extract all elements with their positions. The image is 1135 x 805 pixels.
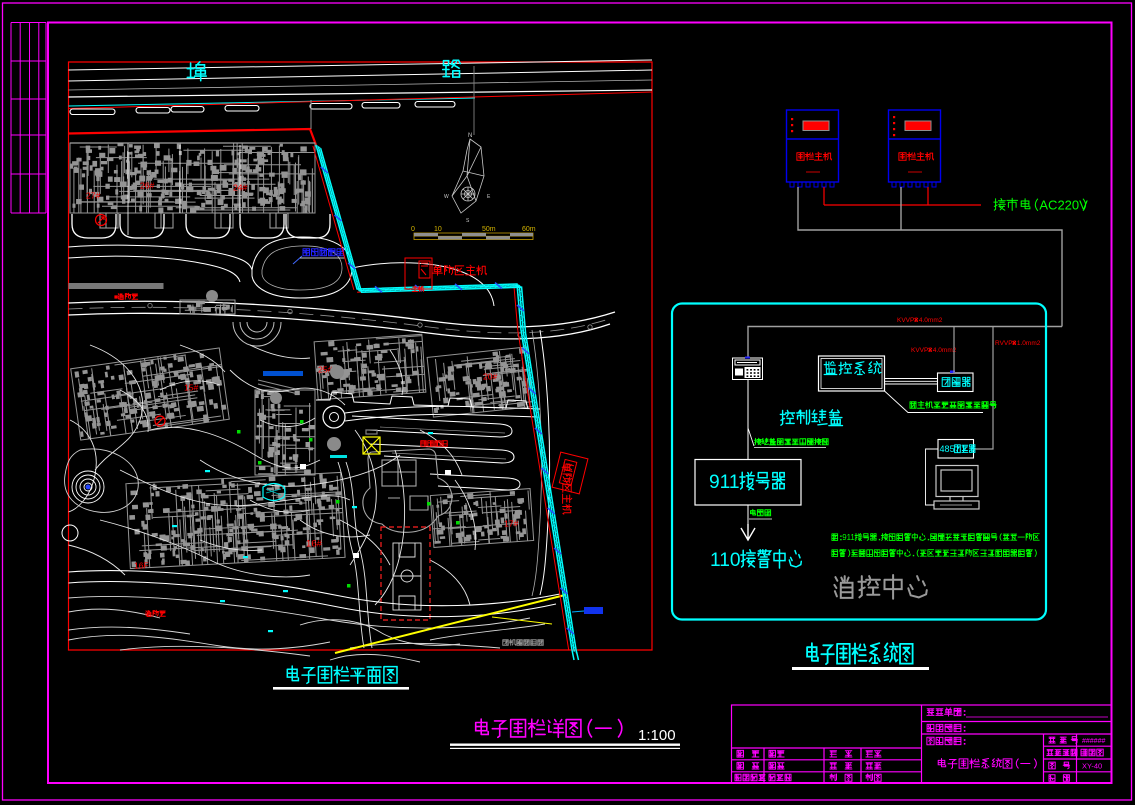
svg-text:24#: 24# <box>233 183 248 193</box>
svg-text:4.0mm2: 4.0mm2 <box>919 317 943 324</box>
svg-text:16#: 16# <box>306 539 323 550</box>
svg-text:■: ■ <box>114 294 118 301</box>
svg-text:911: 911 <box>842 533 855 542</box>
svg-text:485: 485 <box>940 444 955 454</box>
svg-text:######: ###### <box>1082 738 1105 745</box>
svg-text:15#: 15# <box>184 383 199 393</box>
svg-text:XY-40: XY-40 <box>1082 762 1102 771</box>
svg-text:N: N <box>468 133 472 139</box>
svg-text:1:100: 1:100 <box>638 727 676 744</box>
svg-text:20#: 20# <box>483 372 498 382</box>
svg-text:10: 10 <box>434 226 442 233</box>
svg-text:110: 110 <box>710 550 741 571</box>
svg-text:4.0mm2: 4.0mm2 <box>933 347 957 354</box>
svg-text:26#: 26# <box>140 181 155 191</box>
svg-text:17#: 17# <box>504 519 519 529</box>
svg-text:W: W <box>444 194 449 200</box>
svg-text:1.0mm2: 1.0mm2 <box>1017 340 1041 347</box>
svg-text:27#: 27# <box>86 191 101 201</box>
svg-text:60m: 60m <box>522 226 536 233</box>
svg-text:911: 911 <box>709 472 740 493</box>
svg-text:0: 0 <box>411 226 415 233</box>
svg-text:50m: 50m <box>482 226 496 233</box>
svg-text:16F: 16F <box>134 561 149 571</box>
svg-text:AC220V: AC220V <box>1039 198 1088 213</box>
